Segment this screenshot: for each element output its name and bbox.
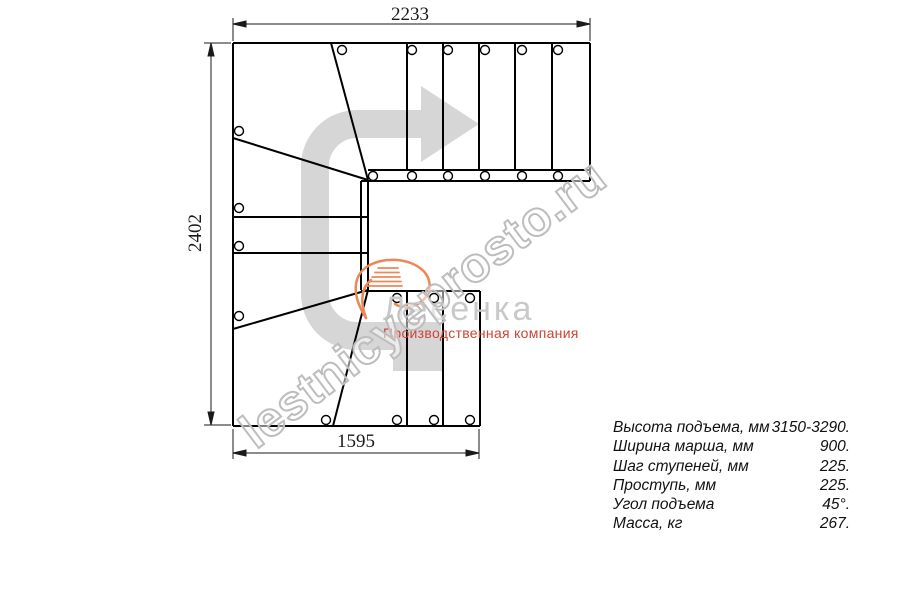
spec-value: 267. xyxy=(820,514,850,533)
dim-arrowhead xyxy=(466,450,479,456)
screw-hole xyxy=(481,46,490,55)
screw-hole xyxy=(408,46,417,55)
spec-row-height: Высота подъема, мм 3150-3290. xyxy=(613,418,850,437)
spec-table: Высота подъема, мм 3150-3290. Ширина мар… xyxy=(613,418,850,534)
spec-label: Высота подъема, мм xyxy=(613,418,770,437)
screw-hole xyxy=(444,172,453,181)
screw-hole xyxy=(393,416,402,425)
spec-row-mass: Масса, кг 267. xyxy=(613,514,850,533)
dim-top-value: 2233 xyxy=(391,4,429,25)
spec-label: Шаг ступеней, мм xyxy=(613,457,749,476)
screw-hole xyxy=(481,172,490,181)
spec-value: 3150-3290. xyxy=(772,418,850,437)
dim-bottom-value: 1595 xyxy=(337,431,375,452)
screw-hole xyxy=(518,46,527,55)
screw-hole xyxy=(554,46,563,55)
screw-hole xyxy=(235,204,244,213)
screw-hole xyxy=(235,312,244,321)
arrow-head xyxy=(421,86,479,162)
screw-hole xyxy=(518,172,527,181)
winder-line xyxy=(233,138,368,180)
screw-hole xyxy=(408,172,417,181)
flame-stairs-steps xyxy=(366,268,402,286)
dim-left-value: 2402 xyxy=(185,214,206,252)
screw-hole xyxy=(338,46,347,55)
spec-row-flight-width: Ширина марша, мм 900. xyxy=(613,437,850,456)
spec-row-step-pitch: Шаг ступеней, мм 225. xyxy=(613,457,850,476)
spec-value: 900. xyxy=(820,437,850,456)
screw-hole xyxy=(430,416,439,425)
stair-drawing-canvas: 2233 2402 1595 Лесенка Производственная … xyxy=(0,0,900,600)
spec-row-climb-angle: Угол подъема 45°. xyxy=(613,495,850,514)
dim-arrowhead xyxy=(208,412,214,425)
dim-arrowhead xyxy=(577,21,590,27)
screw-hole xyxy=(235,127,244,136)
spec-label: Проступь, мм xyxy=(613,476,716,495)
spec-value: 45°. xyxy=(822,495,850,514)
screw-hole xyxy=(235,242,244,251)
spec-label: Масса, кг xyxy=(613,514,682,533)
spec-label: Ширина марша, мм xyxy=(613,437,754,456)
dim-arrowhead xyxy=(233,21,246,27)
spec-row-tread-depth: Проступь, мм 225. xyxy=(613,476,850,495)
spec-value: 225. xyxy=(820,457,850,476)
dim-arrowhead xyxy=(233,450,246,456)
screw-hole xyxy=(466,416,475,425)
screw-hole xyxy=(369,172,378,181)
screw-hole xyxy=(444,46,453,55)
spec-value: 225. xyxy=(820,476,850,495)
dim-arrowhead xyxy=(208,43,214,56)
spec-label: Угол подъема xyxy=(613,495,714,514)
watermark-text: lestnicyeprosto.ru xyxy=(230,149,616,459)
screw-hole xyxy=(322,416,331,425)
